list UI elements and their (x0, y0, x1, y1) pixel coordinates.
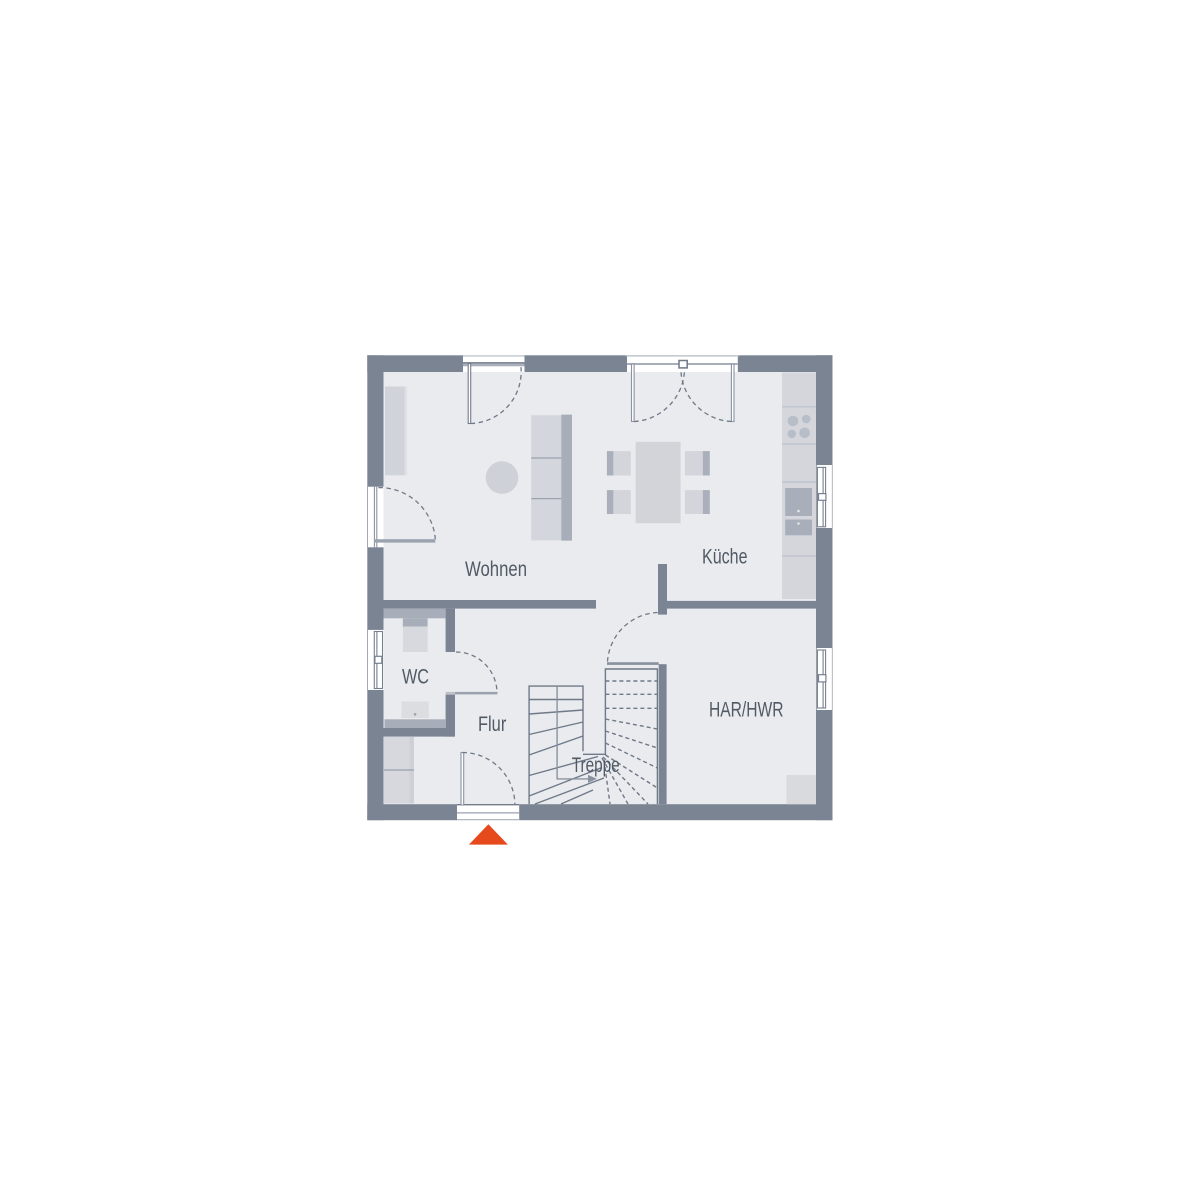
svg-text:HAR/HWR: HAR/HWR (709, 698, 784, 721)
svg-text:Küche: Küche (702, 546, 748, 569)
svg-text:Treppe: Treppe (572, 754, 620, 777)
svg-text:Flur: Flur (478, 713, 506, 736)
svg-text:WC: WC (402, 666, 429, 689)
svg-text:Wohnen: Wohnen (465, 558, 527, 581)
